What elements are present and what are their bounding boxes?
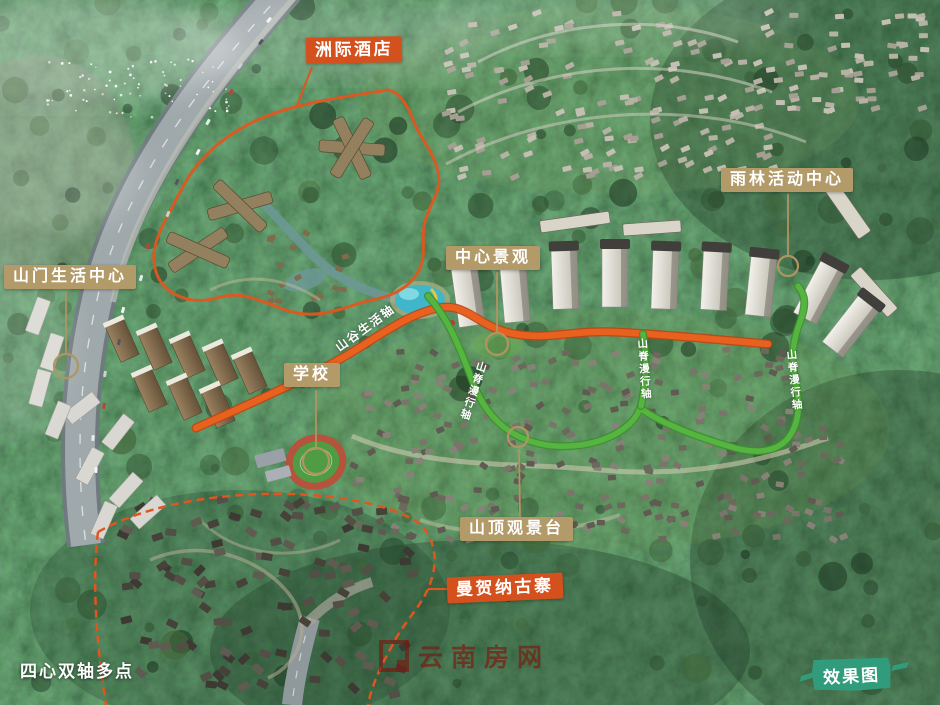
planning-concept-text: 四心双轴多点 bbox=[20, 657, 134, 682]
watermark: 云南房网 bbox=[379, 638, 550, 674]
watermark-text: 云南房网 bbox=[418, 638, 550, 674]
rendering-badge: 效果图 bbox=[811, 656, 892, 693]
label-manhena-ancient-village: 曼贺纳古寨 bbox=[446, 572, 563, 603]
master-plan-rendering: 洲际酒店 雨林活动中心 中心景观 山门生活中心 学校 山顶观景台 曼贺纳古寨 山… bbox=[0, 0, 940, 705]
watermark-logo-icon bbox=[379, 640, 409, 672]
label-central-landscape: 中心景观 bbox=[446, 246, 540, 270]
label-gate-life-center: 山门生活中心 bbox=[4, 265, 136, 289]
label-rainforest-activity-center: 雨林活动中心 bbox=[721, 168, 853, 192]
label-school: 学校 bbox=[284, 363, 340, 387]
label-summit-viewing-deck: 山顶观景台 bbox=[460, 517, 573, 541]
label-intercontinental-hotel: 洲际酒店 bbox=[306, 36, 402, 63]
